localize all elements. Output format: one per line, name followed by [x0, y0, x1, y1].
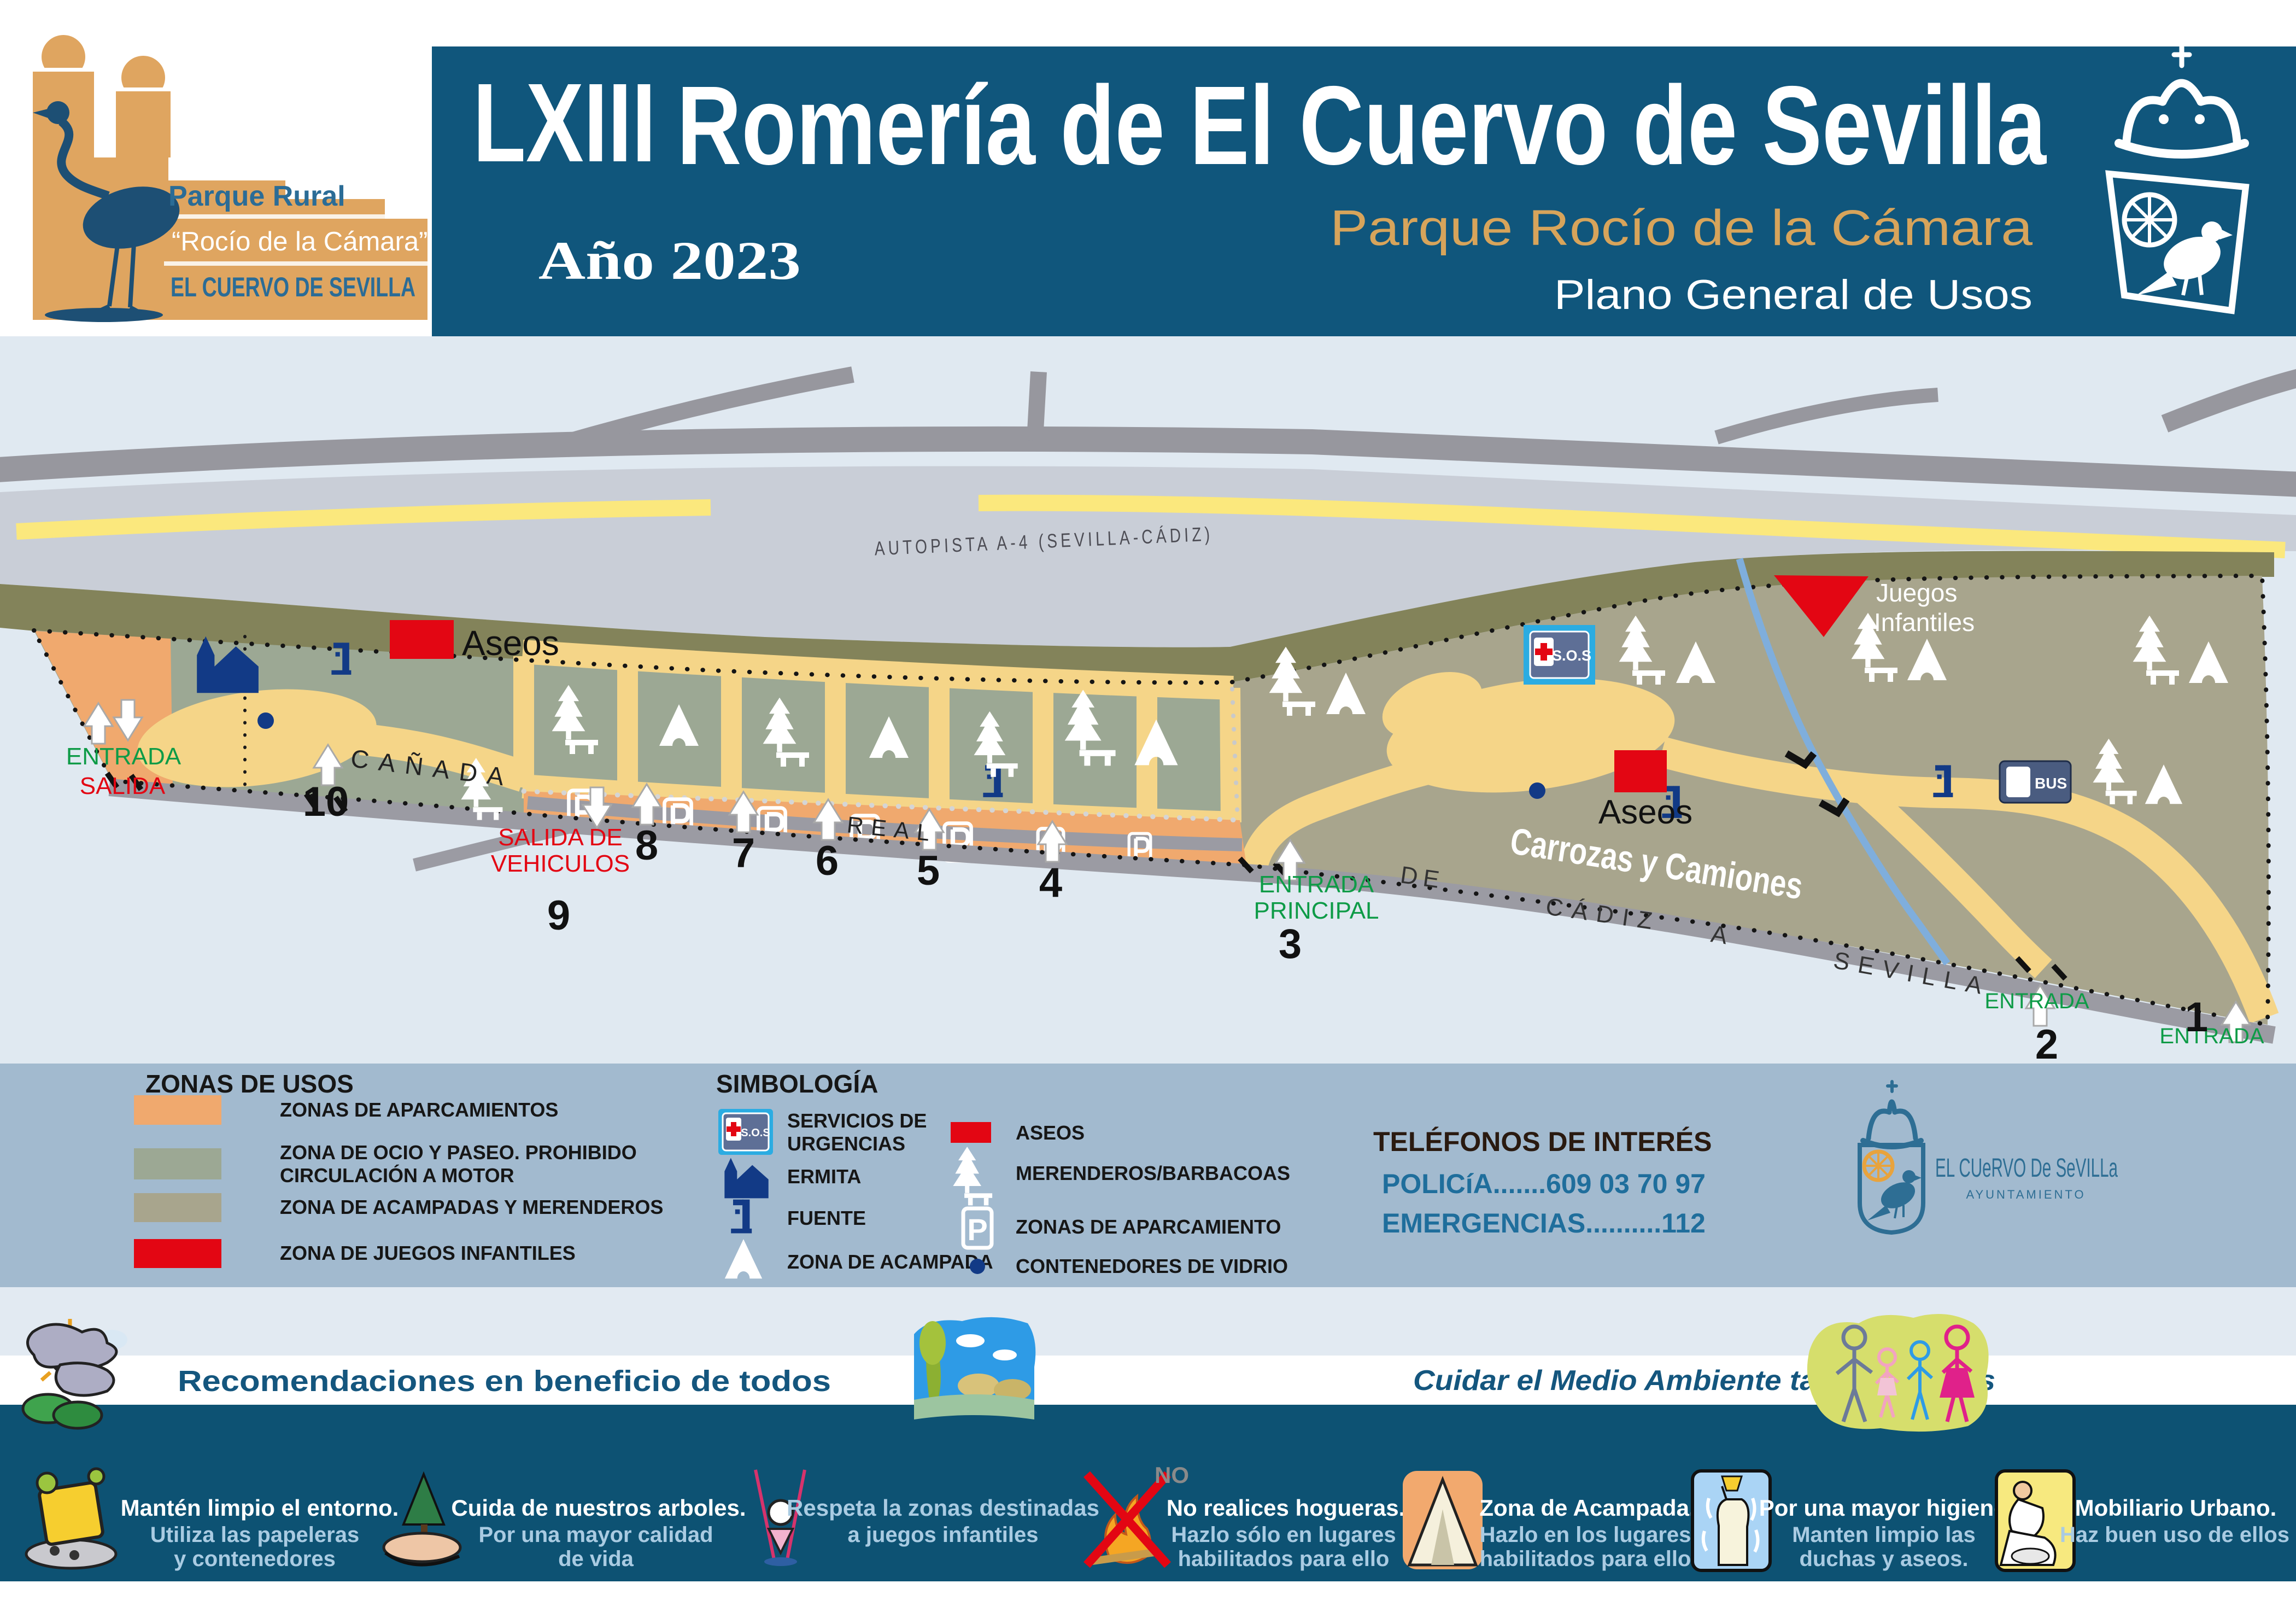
rec-title-4: No realices hogueras. — [1167, 1495, 1405, 1521]
rec-line1-7: Haz buen uso de ellos — [2060, 1523, 2289, 1547]
edition-number: LXIII — [473, 60, 656, 185]
phones-title: TELÉFONOS DE INTERÉS — [1373, 1126, 1712, 1157]
plan-name: Plano General de Usos — [1554, 272, 2033, 318]
map-label-salida-vehiculos-2: VEHICULOS — [491, 850, 630, 877]
map-label-salida-vehiculos-1: SALIDA DE — [498, 824, 622, 851]
zone-swatch-ocio — [134, 1148, 221, 1179]
rec-line2-2: de vida — [558, 1547, 634, 1571]
park-map: AUTOPISTA A-4 (SEVILLA-CÁDIZ) — [0, 336, 2296, 1068]
rec-line1-4: Hazlo sólo en lugares — [1171, 1523, 1396, 1547]
symbol-label-merenderos: MERENDEROS/BARBACOAS — [1016, 1162, 1290, 1184]
rec-title-3: Respeta la zonas destinadas — [787, 1495, 1099, 1521]
rec-line1-6: Manten limpio las — [1792, 1523, 1976, 1547]
rec-title-1: Mantén limpio el entorno. — [121, 1495, 399, 1521]
rec-line2-5: habilitados para ello — [1480, 1547, 1691, 1571]
recommendations-banner: Recomendaciones en beneficio de todos — [178, 1365, 831, 1398]
entrance-2: 2 — [2035, 1021, 2058, 1068]
rec-line1-2: Por una mayor calidad — [478, 1523, 713, 1547]
legend-parking-letter: P — [967, 1212, 987, 1247]
rec-line1-1: Utiliza las papeleras — [150, 1523, 359, 1547]
entrance-9: 9 — [547, 892, 570, 939]
poster-page: Parque Rural “Rocío de la Cámara” EL CUE… — [0, 0, 2296, 1624]
rec-line2-1: y contenedores — [174, 1547, 336, 1571]
zone-swatch-aparcamientos — [134, 1095, 221, 1125]
legend-section: ZONAS DE USOS ZONAS DE APARCAMIENTOS ZON… — [0, 1064, 2296, 1356]
phone-policia: POLICíA.......609 03 70 97 — [1382, 1169, 1706, 1199]
zone-label-juegos: ZONA DE JUEGOS INFANTILES — [280, 1242, 576, 1264]
rec-title-7: Mobiliario Urbano. — [2075, 1495, 2277, 1521]
legend-aseos-icon — [951, 1122, 991, 1143]
map-label-entrada-2: ENTRADA — [1984, 989, 2089, 1013]
symbol-label-aparcamiento: ZONAS DE APARCAMIENTO — [1016, 1216, 1281, 1238]
logo-line2: “Rocío de la Cámara” — [172, 227, 427, 256]
entrance-3: 3 — [1279, 921, 1302, 967]
entrance-10: 10 — [303, 779, 349, 825]
rec-title-2: Cuida de nuestros arboles. — [451, 1495, 746, 1521]
zone-swatch-juegos — [134, 1239, 221, 1268]
map-label-entrada-principal-2: PRINCIPAL — [1254, 897, 1379, 924]
zones-title: ZONAS DE USOS — [145, 1070, 354, 1098]
bus-sign: BUS — [2000, 761, 2071, 803]
camp-tent-icon — [1403, 1471, 1483, 1569]
rec-title-5: Zona de Acampada. — [1479, 1495, 1695, 1521]
toilet-icon — [1996, 1471, 2074, 1570]
rec-line2-6: duchas y aseos. — [1799, 1547, 1968, 1571]
sos-sign: S.O.S — [1524, 625, 1595, 685]
municipality-name: EL CUeRVO De SeVILLa — [1935, 1154, 2118, 1183]
map-label-entrada-principal-1: ENTRADA — [1259, 871, 1374, 898]
entrance-4: 4 — [1039, 860, 1062, 906]
legend-vidrio-icon — [970, 1259, 985, 1274]
logo-line1: Parque Rural — [168, 180, 345, 212]
zone-label-ocio-1: ZONA DE OCIO Y PASEO. PROHIBIDO — [280, 1141, 637, 1164]
bus-label: BUS — [2035, 775, 2067, 792]
symbol-label-urgencias-1: SERVICIOS DE — [787, 1109, 927, 1132]
symbols-title: SIMBOLOGÍA — [716, 1070, 878, 1098]
symbol-label-aseos: ASEOS — [1016, 1121, 1085, 1144]
zone-label-acampadas: ZONA DE ACAMPADAS Y MERENDEROS — [280, 1196, 663, 1218]
symbol-label-urgencias-2: URGENCIAS — [787, 1132, 905, 1155]
aseos-icon — [390, 620, 454, 659]
entrance-8: 8 — [635, 822, 658, 869]
map-label-juegos-1: Juegos — [1876, 579, 1957, 607]
edition-year: Año 2023 — [538, 230, 801, 291]
park-rural-logo: Parque Rural “Rocío de la Cámara” EL CUE… — [33, 35, 427, 322]
zone-swatch-acampadas — [134, 1193, 221, 1222]
zone-label-aparcamientos: ZONAS DE APARCAMIENTOS — [280, 1099, 558, 1121]
legend-sos-icon: S.O.S — [718, 1109, 773, 1155]
map-label-aseos1: Aseos — [462, 623, 559, 663]
entrance-5: 5 — [917, 848, 940, 894]
map-label-aseos2: Aseos — [1598, 793, 1692, 831]
entrance-7: 7 — [732, 830, 755, 877]
vidrio-icon — [257, 712, 274, 729]
map-label-entrada-1: ENTRADA — [2159, 1024, 2264, 1048]
legend-sos-label: S.O.S — [741, 1127, 770, 1139]
symbol-label-acampada: ZONA DE ACAMPADA — [787, 1251, 993, 1273]
no-label: NO — [1155, 1462, 1189, 1488]
rec-line2-4: habilitados para ello — [1178, 1547, 1390, 1571]
rec-line1-5: Hazlo en los lugares — [1480, 1523, 1691, 1547]
rec-line1-3: a juegos infantiles — [848, 1523, 1039, 1547]
tree-landscape-illustration — [914, 1317, 1035, 1419]
header: Parque Rural “Rocío de la Cámara” EL CUE… — [33, 35, 2296, 336]
sos-label: S.O.S — [1552, 647, 1591, 664]
symbol-label-fuente: FUENTE — [787, 1207, 866, 1229]
family-illustration — [1807, 1314, 1989, 1432]
symbol-label-vidrio: CONTENEDORES DE VIDRIO — [1016, 1255, 1288, 1277]
page-title: Romería de El Cuervo de Sevilla — [677, 63, 2047, 188]
shower-icon — [1692, 1471, 1770, 1570]
symbol-label-ermita: ERMITA — [787, 1165, 861, 1188]
legend-parking-icon: P — [963, 1208, 992, 1248]
park-name: Parque Rocío de la Cámara — [1330, 200, 2033, 256]
phone-emergencias: EMERGENCIAS..........112 — [1382, 1208, 1706, 1239]
aseos-icon — [1614, 750, 1667, 792]
map-label-entrada-oeste: ENTRADA — [66, 743, 181, 770]
vidrio-icon — [1529, 782, 1545, 799]
map-label-juegos-2: Infantiles — [1874, 608, 1975, 636]
logo-line3: EL CUERVO DE SEVILLA — [171, 272, 415, 302]
municipality-sub: AYUNTAMIENTO — [1966, 1188, 2086, 1201]
rec-title-6: Por una mayor higiene. — [1759, 1495, 2013, 1521]
entrance-6: 6 — [816, 838, 839, 884]
zone-label-ocio-2: CIRCULACIÓN A MOTOR — [280, 1164, 514, 1187]
entrance-1: 1 — [2185, 994, 2208, 1041]
map-label-salida-oeste: SALIDA — [80, 773, 166, 799]
